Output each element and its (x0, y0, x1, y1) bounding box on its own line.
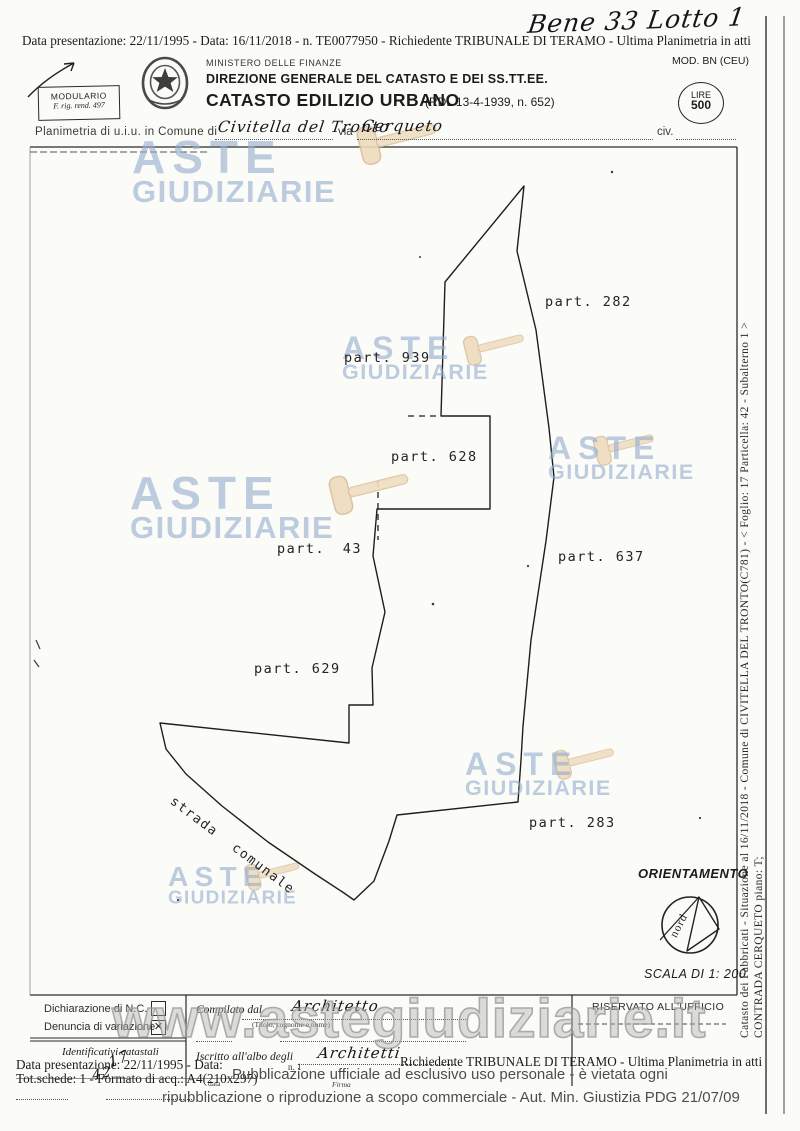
footer-notice-line1: Pubblicazione ufficiale ad esclusivo uso… (232, 1066, 668, 1083)
footer-notice-line2: ripubblicazione o riproduzione a scopo c… (162, 1089, 740, 1106)
url-watermark: www.astegiudiziarie.it (112, 986, 707, 1050)
scanned-cadastral-document: { "annotations": { "handwritten_title": … (0, 0, 800, 1131)
footer-tot-line: Tot.schede: 1 - Formato di acq.: A4(210x… (16, 1071, 258, 1087)
form-lines (0, 0, 800, 1131)
